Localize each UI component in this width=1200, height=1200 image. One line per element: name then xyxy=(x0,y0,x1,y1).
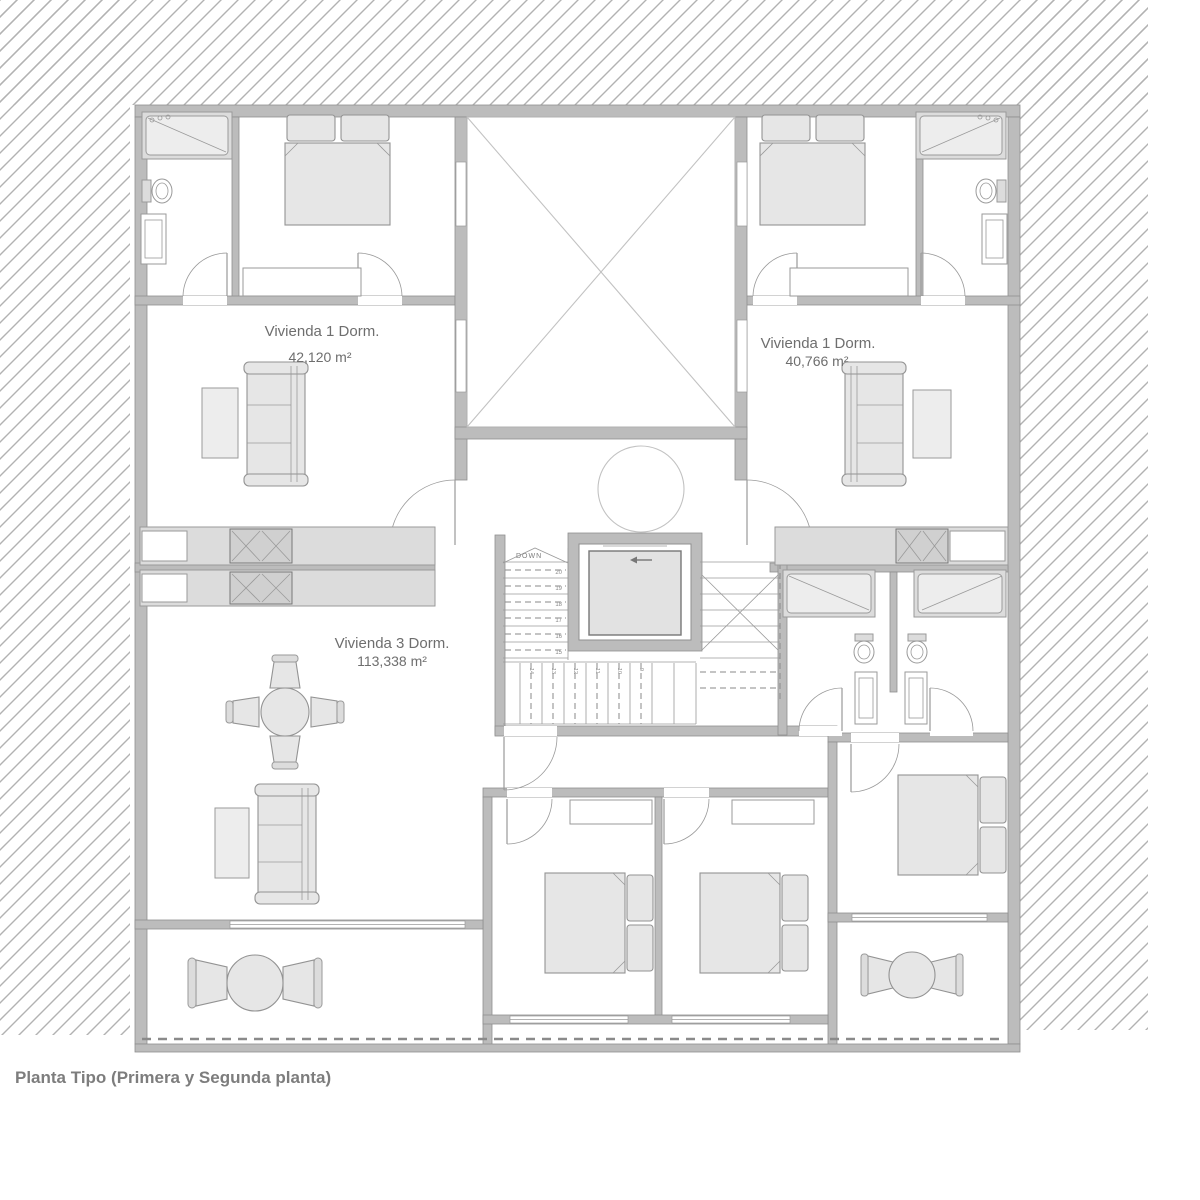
step-number: 17 xyxy=(555,618,562,624)
door xyxy=(358,253,402,296)
shower xyxy=(916,112,1006,159)
step-number: 11 xyxy=(594,668,600,674)
step-number: 16 xyxy=(555,634,562,640)
hall-circle xyxy=(598,446,684,532)
double-bed xyxy=(285,115,390,225)
sink xyxy=(141,214,166,264)
stair-bottom-flight: 14 13 12 11 10 9 xyxy=(503,662,696,724)
closet xyxy=(570,800,652,824)
coffee-table xyxy=(215,808,249,878)
floor-plan-page: DOWN 20 19 18 17 16 15 1 xyxy=(0,0,1200,1200)
unit-left-area: 42,120 m² xyxy=(288,349,351,365)
door xyxy=(921,253,965,296)
sofa xyxy=(842,362,906,486)
balcony-table-set xyxy=(188,955,322,1011)
step-number: 14 xyxy=(528,668,534,674)
door xyxy=(504,737,557,790)
step-number: 15 xyxy=(555,650,562,656)
sink-stove-icon xyxy=(230,572,292,604)
sink-stove-icon xyxy=(230,529,292,563)
door xyxy=(507,799,552,844)
patio-window xyxy=(737,162,747,226)
sink xyxy=(982,214,1007,264)
unit-left-name: Vivienda 1 Dorm. xyxy=(265,323,380,340)
elevator-cab xyxy=(589,551,681,635)
sofa xyxy=(255,784,319,904)
sink-stove-icon xyxy=(896,529,948,563)
toilet xyxy=(907,634,927,663)
double-bed xyxy=(760,115,865,225)
step-number: 18 xyxy=(555,602,562,608)
hatch-left xyxy=(0,0,130,1035)
door xyxy=(183,253,227,296)
unit-big-area: 113,338 m² xyxy=(357,653,427,669)
bathtub xyxy=(914,570,1006,617)
sink xyxy=(855,672,877,724)
dining-table xyxy=(226,655,344,769)
stair-left-flight: DOWN 20 19 18 17 16 15 xyxy=(503,548,568,660)
unit-right-name: Vivienda 1 Dorm. xyxy=(761,335,876,352)
hatch-right xyxy=(1020,0,1148,1030)
patio-window xyxy=(737,320,747,392)
shower xyxy=(142,112,232,159)
step-number: 19 xyxy=(555,586,562,592)
unit-big-name: Vivienda 3 Dorm. xyxy=(335,635,450,652)
sink xyxy=(905,672,927,724)
door xyxy=(851,744,899,792)
kitchen-counter xyxy=(140,527,435,565)
coffee-table xyxy=(913,390,951,458)
patio-lightwell xyxy=(456,117,747,427)
toilet xyxy=(142,179,172,203)
kitchen-counter xyxy=(140,570,435,606)
bathtub xyxy=(783,570,875,617)
balcony-table-set xyxy=(861,952,963,998)
unit-right-area: 40,766 m² xyxy=(785,353,848,369)
stair-right-flight xyxy=(700,562,780,700)
door xyxy=(799,688,842,731)
patio-window xyxy=(456,162,466,226)
hatch-top xyxy=(0,0,1148,105)
closet xyxy=(790,268,908,296)
patio-window xyxy=(456,320,466,392)
floor-plan-drawing: DOWN 20 19 18 17 16 15 1 xyxy=(0,0,1200,1200)
double-bed xyxy=(898,775,1006,875)
step-number: 10 xyxy=(616,668,622,674)
step-number: 20 xyxy=(555,570,562,576)
toilet xyxy=(976,179,1006,203)
step-number: 12 xyxy=(572,668,578,674)
stair-down-label: DOWN xyxy=(516,553,542,560)
door xyxy=(664,799,709,844)
closet xyxy=(243,268,361,296)
closet xyxy=(732,800,814,824)
double-bed xyxy=(545,873,653,973)
plan-caption: Planta Tipo (Primera y Segunda planta) xyxy=(15,1068,331,1087)
sofa xyxy=(244,362,308,486)
kitchen-counter xyxy=(775,527,1008,565)
door xyxy=(930,688,973,731)
toilet xyxy=(854,634,874,663)
elevator xyxy=(568,533,702,651)
step-number: 9 xyxy=(638,668,644,671)
step-number: 13 xyxy=(550,668,556,674)
double-bed xyxy=(700,873,808,973)
coffee-table xyxy=(202,388,238,458)
